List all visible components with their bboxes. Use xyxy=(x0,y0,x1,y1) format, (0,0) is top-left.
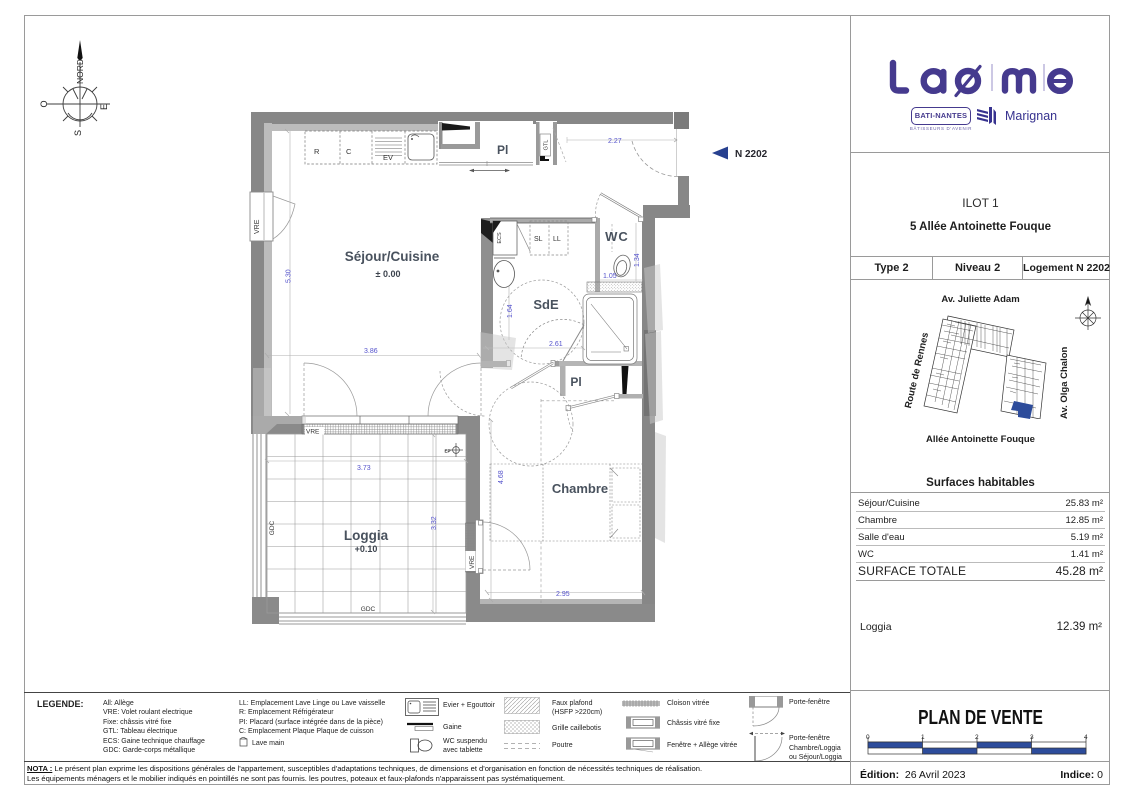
svg-text:VRE: VRE xyxy=(306,429,320,436)
svg-text:1.64: 1.64 xyxy=(507,304,514,318)
svg-text:Chambre: Chambre xyxy=(552,481,608,496)
svg-text:VRE: VRE xyxy=(469,555,476,569)
svg-text:R: R xyxy=(314,147,320,156)
svg-text:Pl: Pl xyxy=(570,375,581,389)
svg-text:EV: EV xyxy=(383,153,393,162)
svg-text:2.27: 2.27 xyxy=(608,138,622,145)
svg-text:4.68: 4.68 xyxy=(498,470,505,484)
svg-text:3.86: 3.86 xyxy=(364,348,378,355)
svg-text:LL: LL xyxy=(553,236,561,243)
svg-text:GDC: GDC xyxy=(361,606,376,613)
svg-text:GTL: GTL xyxy=(544,140,550,151)
svg-text:Pl: Pl xyxy=(497,143,508,157)
svg-text:VRE: VRE xyxy=(254,219,261,234)
svg-text:3: 3 xyxy=(1030,734,1034,741)
svg-text:S: S xyxy=(73,130,83,136)
svg-text:5.30: 5.30 xyxy=(286,269,293,283)
svg-text:NORD: NORD xyxy=(75,59,85,84)
svg-text:C: C xyxy=(346,147,352,156)
svg-text:O: O xyxy=(39,100,49,107)
svg-text:1.05: 1.05 xyxy=(603,273,617,280)
svg-text:1.34: 1.34 xyxy=(634,253,641,267)
svg-text:Séjour/Cuisine: Séjour/Cuisine xyxy=(345,249,440,264)
svg-text:GDC: GDC xyxy=(269,520,276,535)
svg-text:WC: WC xyxy=(605,229,629,244)
svg-text:1: 1 xyxy=(921,734,925,741)
svg-text:N 2202: N 2202 xyxy=(735,149,768,160)
svg-text:SdE: SdE xyxy=(533,297,559,312)
svg-text:EP: EP xyxy=(445,449,451,454)
svg-text:2.61: 2.61 xyxy=(549,341,563,348)
svg-text:3.32: 3.32 xyxy=(431,516,438,530)
svg-text:+0.10: +0.10 xyxy=(355,544,378,554)
svg-text:SL: SL xyxy=(534,236,543,243)
svg-text:E: E xyxy=(99,104,109,110)
svg-text:3.73: 3.73 xyxy=(357,465,371,472)
svg-text:Loggia: Loggia xyxy=(344,528,389,543)
svg-text:2.95: 2.95 xyxy=(556,591,570,598)
svg-text:± 0.00: ± 0.00 xyxy=(376,269,401,279)
svg-text:ECS: ECS xyxy=(497,232,503,244)
